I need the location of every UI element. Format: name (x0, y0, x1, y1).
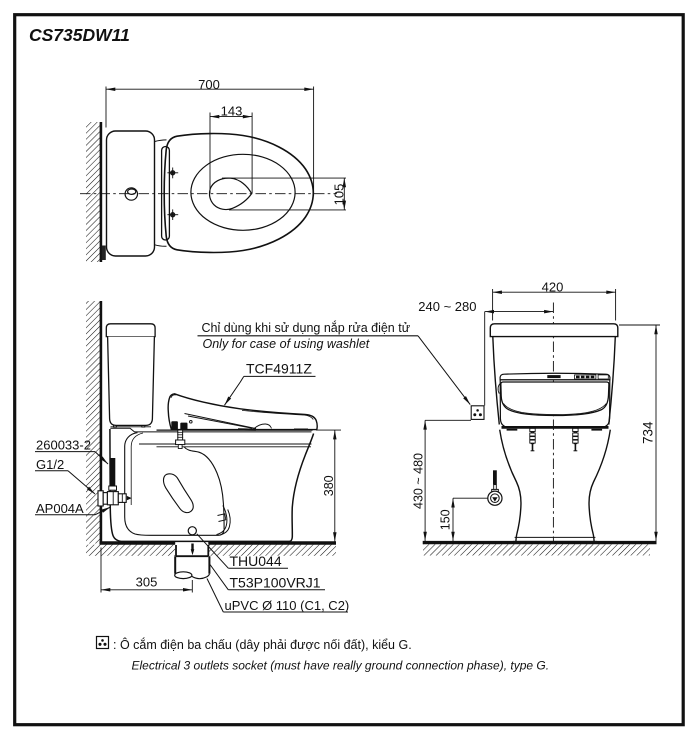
svg-text:CS735DW11: CS735DW11 (29, 25, 130, 45)
svg-text:430 ~ 480: 430 ~ 480 (412, 453, 426, 509)
svg-text:Electrical 3 outlets socket (m: Electrical 3 outlets socket (must have r… (132, 659, 550, 673)
svg-text:uPVC Ø 110 (C1, C2): uPVC Ø 110 (C1, C2) (225, 598, 350, 613)
svg-text:T53P100VRJ1: T53P100VRJ1 (230, 575, 321, 591)
svg-text:G1/2: G1/2 (36, 457, 64, 472)
svg-text:Only for case of using washlet: Only for case of using washlet (203, 337, 370, 351)
svg-text:THU044: THU044 (230, 553, 282, 569)
svg-text:Chỉ dùng khi sử dụng nắp rửa đ: Chỉ dùng khi sử dụng nắp rửa điện tử (202, 320, 411, 335)
svg-text:420: 420 (542, 279, 564, 294)
svg-text:143: 143 (221, 104, 243, 119)
svg-text:380: 380 (322, 475, 336, 496)
svg-text:734: 734 (641, 421, 656, 444)
svg-text:150: 150 (438, 509, 452, 530)
svg-text:305: 305 (136, 575, 158, 590)
svg-text:: Ô cắm điện ba chấu (dây phải: : Ô cắm điện ba chấu (dây phải được nối … (113, 637, 412, 652)
svg-text:AP004A: AP004A (36, 501, 84, 516)
svg-text:260033-2: 260033-2 (36, 438, 91, 453)
svg-text:240 ~ 280: 240 ~ 280 (418, 299, 476, 314)
svg-text:700: 700 (198, 77, 220, 92)
svg-text:TCF4911Z: TCF4911Z (246, 361, 312, 377)
svg-text:105: 105 (331, 184, 346, 206)
